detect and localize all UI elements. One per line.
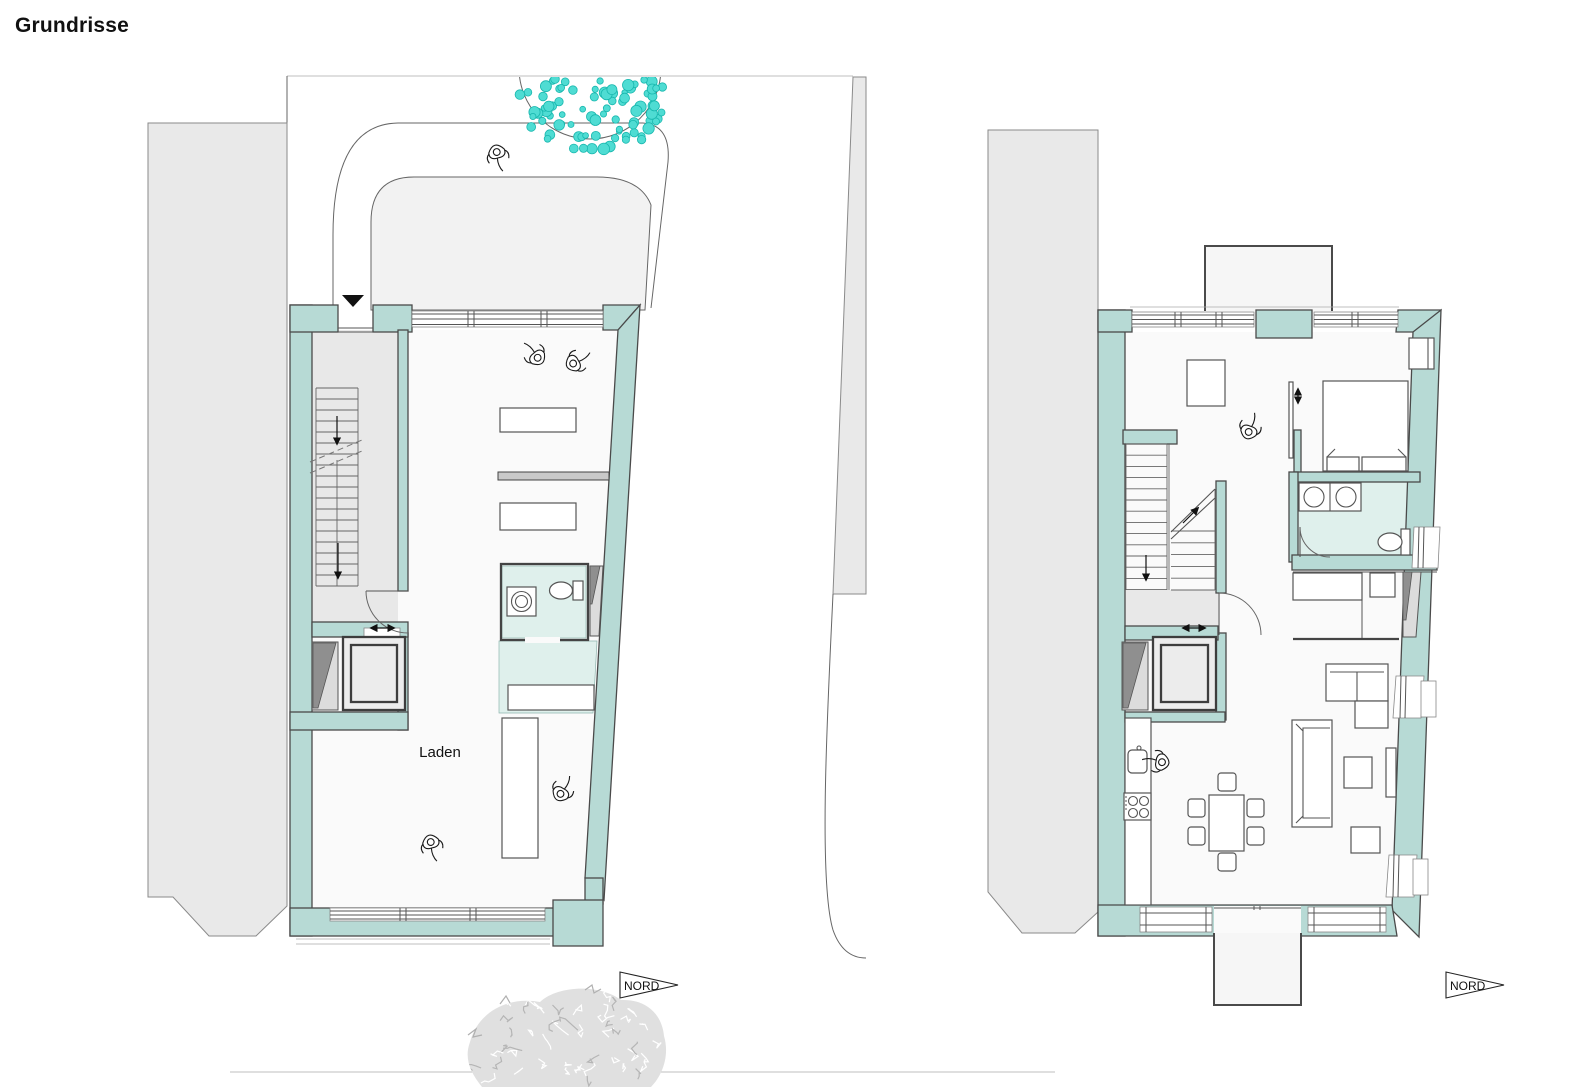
- neighbor-parcel-strip: [833, 77, 866, 594]
- shelf: [500, 503, 576, 530]
- duct-shaft: [312, 642, 338, 710]
- person-figure: [484, 142, 512, 174]
- shop-counter: [502, 718, 538, 858]
- toilet-icon: [550, 581, 584, 600]
- north-label: NORD: [624, 979, 660, 993]
- sofa: [1292, 720, 1332, 827]
- nightstand: [1409, 338, 1434, 369]
- entrance-arrow-icon: [342, 295, 364, 307]
- ottoman: [1351, 827, 1380, 853]
- stove-icon: [1124, 793, 1151, 820]
- bed: [1323, 381, 1408, 471]
- tree-icon: [515, 0, 667, 155]
- side-table: [1386, 748, 1396, 797]
- shrub-icon: [466, 985, 666, 1087]
- partition-wall: [498, 472, 609, 480]
- balcony-top: [1205, 246, 1332, 311]
- forecourt: [371, 177, 651, 310]
- neighbor-building-left: [148, 123, 287, 936]
- balcony-bottom: [1214, 933, 1301, 1005]
- neighbor-building-right: [988, 130, 1098, 933]
- washing-machine-icon: [507, 587, 536, 616]
- elevator: [1153, 637, 1216, 710]
- floor-plan-upper: [1098, 246, 1441, 1005]
- room-label-shop: Laden: [419, 744, 461, 761]
- north-label: NORD: [1450, 979, 1486, 993]
- counter: [508, 685, 594, 710]
- north-arrow: NORD: [620, 972, 678, 998]
- kitchen-counter: [1124, 718, 1151, 905]
- plan-drawing: NORD: [0, 0, 1593, 1087]
- shelf: [500, 408, 576, 432]
- bathroom-sinks-icon: [1299, 483, 1361, 511]
- duct-shaft: [1122, 642, 1148, 710]
- coffee-table: [1344, 757, 1372, 788]
- floor-plan-sheet: Grundrisse: [0, 0, 1593, 1087]
- rug: [1187, 360, 1225, 406]
- parcel-boundary-curve: [825, 594, 866, 958]
- north-arrow: NORD: [1446, 972, 1504, 998]
- elevator: [343, 637, 405, 710]
